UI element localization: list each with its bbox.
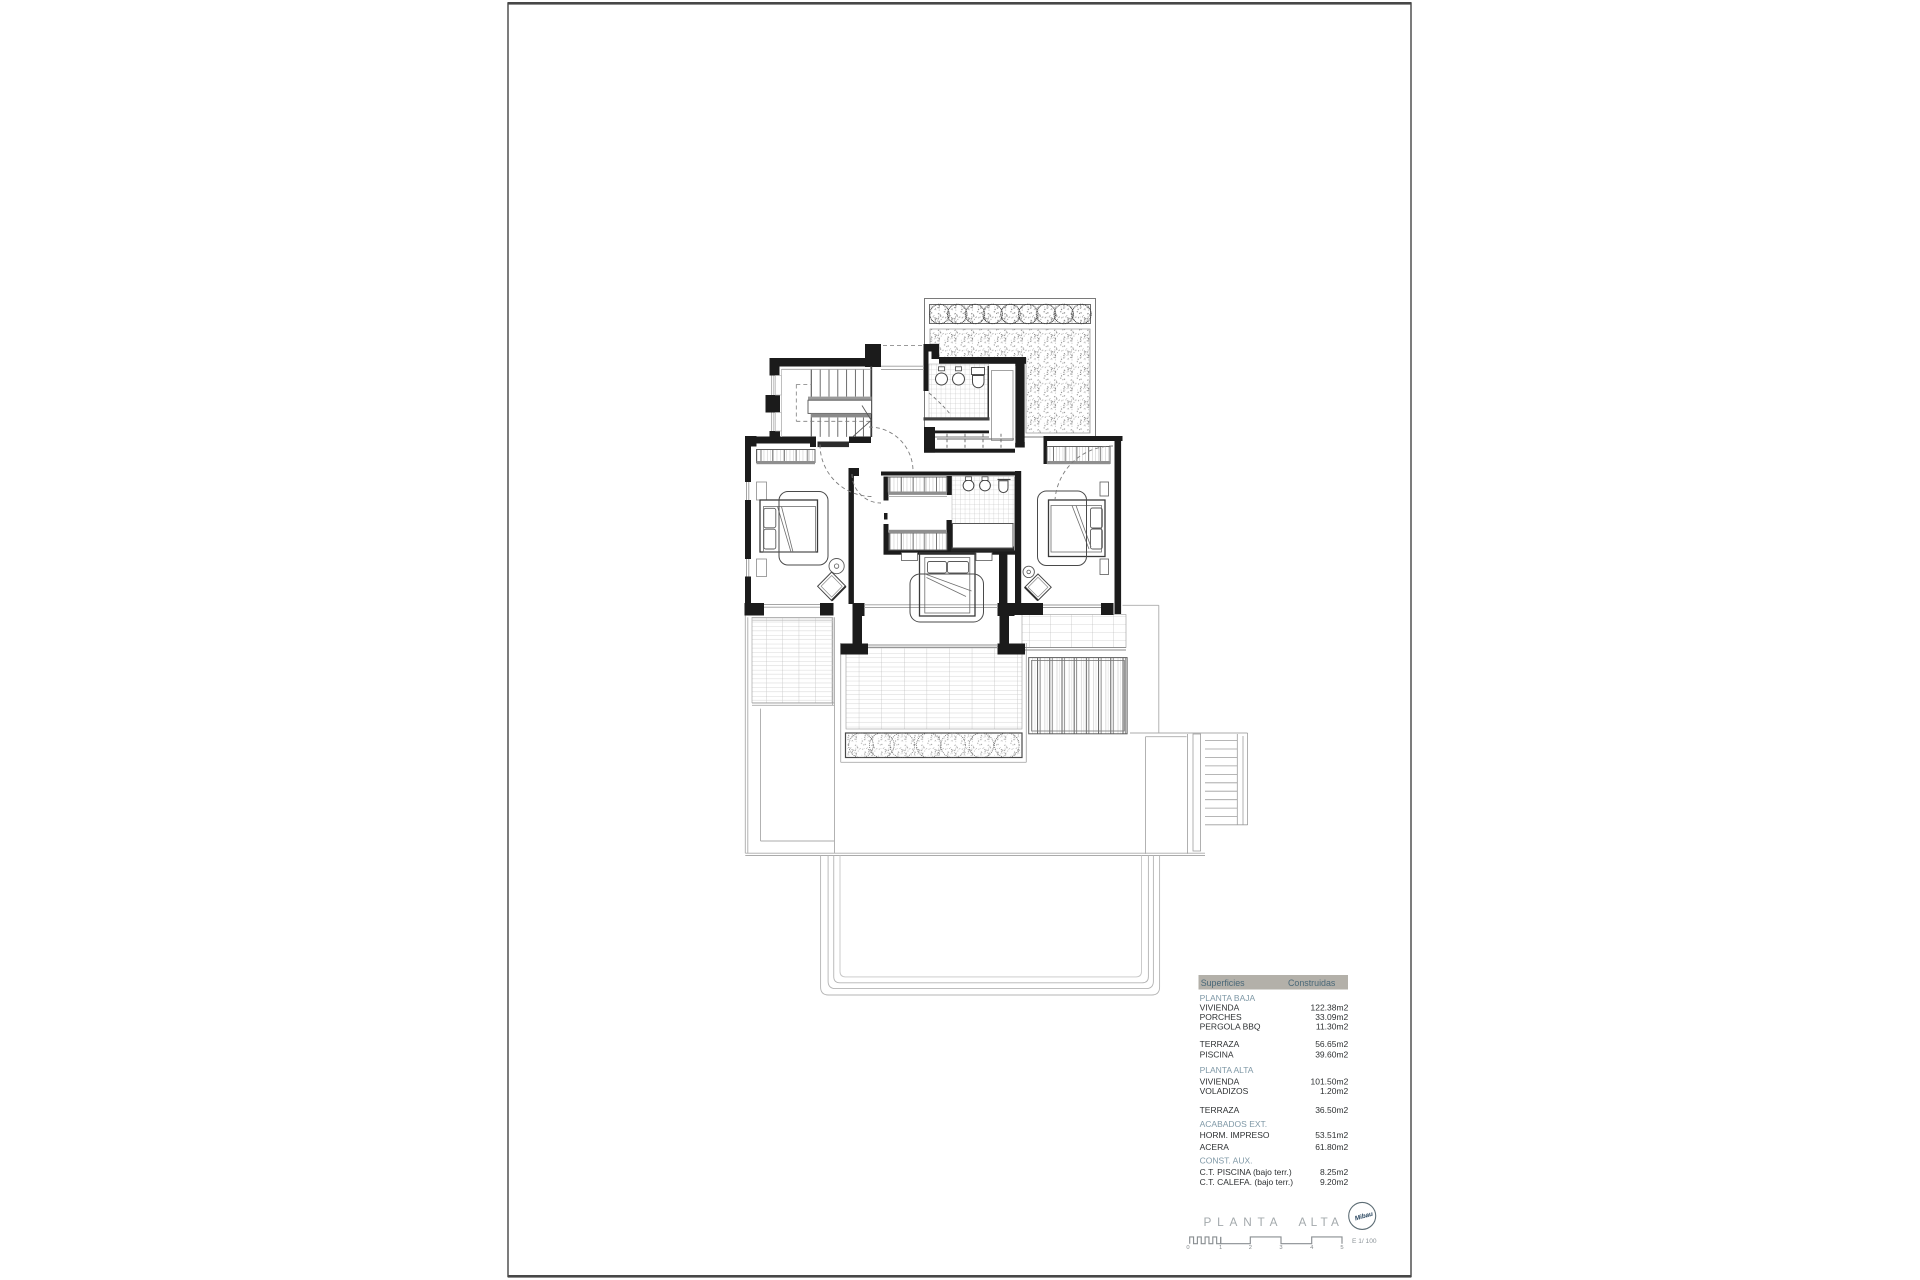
- svg-text:C.T. PISCINA (bajo terr.): C.T. PISCINA (bajo terr.): [1200, 1167, 1292, 1177]
- svg-text:C.T. CALEFA. (bajo terr.): C.T. CALEFA. (bajo terr.): [1200, 1177, 1294, 1187]
- svg-text:61.80m2: 61.80m2: [1315, 1142, 1348, 1152]
- svg-text:PLANTA: PLANTA: [1204, 1215, 1284, 1229]
- svg-text:PORCHES: PORCHES: [1200, 1012, 1242, 1022]
- svg-text:CONST. AUX.: CONST. AUX.: [1200, 1155, 1253, 1165]
- svg-text:Construidas: Construidas: [1288, 978, 1336, 988]
- svg-text:2: 2: [1249, 1245, 1252, 1251]
- svg-text:9.20m2: 9.20m2: [1320, 1177, 1349, 1187]
- svg-text:HORM. IMPRESO: HORM. IMPRESO: [1200, 1130, 1270, 1140]
- svg-text:ALTA: ALTA: [1299, 1215, 1344, 1229]
- svg-text:E 1/ 100: E 1/ 100: [1352, 1238, 1377, 1245]
- svg-text:PISCINA: PISCINA: [1200, 1050, 1234, 1060]
- svg-text:101.50m2: 101.50m2: [1310, 1077, 1348, 1087]
- svg-text:3: 3: [1279, 1245, 1282, 1251]
- svg-text:11.30m2: 11.30m2: [1316, 1021, 1349, 1031]
- svg-text:TERRAZA: TERRAZA: [1200, 1039, 1240, 1049]
- svg-text:1: 1: [1219, 1245, 1222, 1251]
- svg-text:VOLADIZOS: VOLADIZOS: [1200, 1086, 1249, 1096]
- svg-text:56.65m2: 56.65m2: [1315, 1039, 1348, 1049]
- svg-text:ACERA: ACERA: [1200, 1142, 1230, 1152]
- svg-text:39.60m2: 39.60m2: [1315, 1050, 1348, 1060]
- svg-text:122.38m2: 122.38m2: [1310, 1002, 1348, 1012]
- svg-text:8.25m2: 8.25m2: [1320, 1167, 1349, 1177]
- svg-text:TERRAZA: TERRAZA: [1200, 1105, 1240, 1115]
- svg-text:PLANTA ALTA: PLANTA ALTA: [1200, 1065, 1254, 1075]
- svg-text:0: 0: [1186, 1245, 1189, 1251]
- svg-text:36.50m2: 36.50m2: [1315, 1105, 1348, 1115]
- svg-text:VIVIENDA: VIVIENDA: [1200, 1077, 1240, 1087]
- svg-text:53.51m2: 53.51m2: [1315, 1130, 1348, 1140]
- svg-text:Superficies: Superficies: [1201, 978, 1245, 988]
- svg-text:PERGOLA BBQ: PERGOLA BBQ: [1200, 1021, 1261, 1031]
- svg-text:VIVIENDA: VIVIENDA: [1200, 1002, 1240, 1012]
- svg-text:ACABADOS EXT.: ACABADOS EXT.: [1200, 1119, 1268, 1129]
- svg-text:1.20m2: 1.20m2: [1320, 1086, 1349, 1096]
- svg-text:5: 5: [1340, 1245, 1343, 1251]
- svg-text:33.09m2: 33.09m2: [1315, 1012, 1348, 1022]
